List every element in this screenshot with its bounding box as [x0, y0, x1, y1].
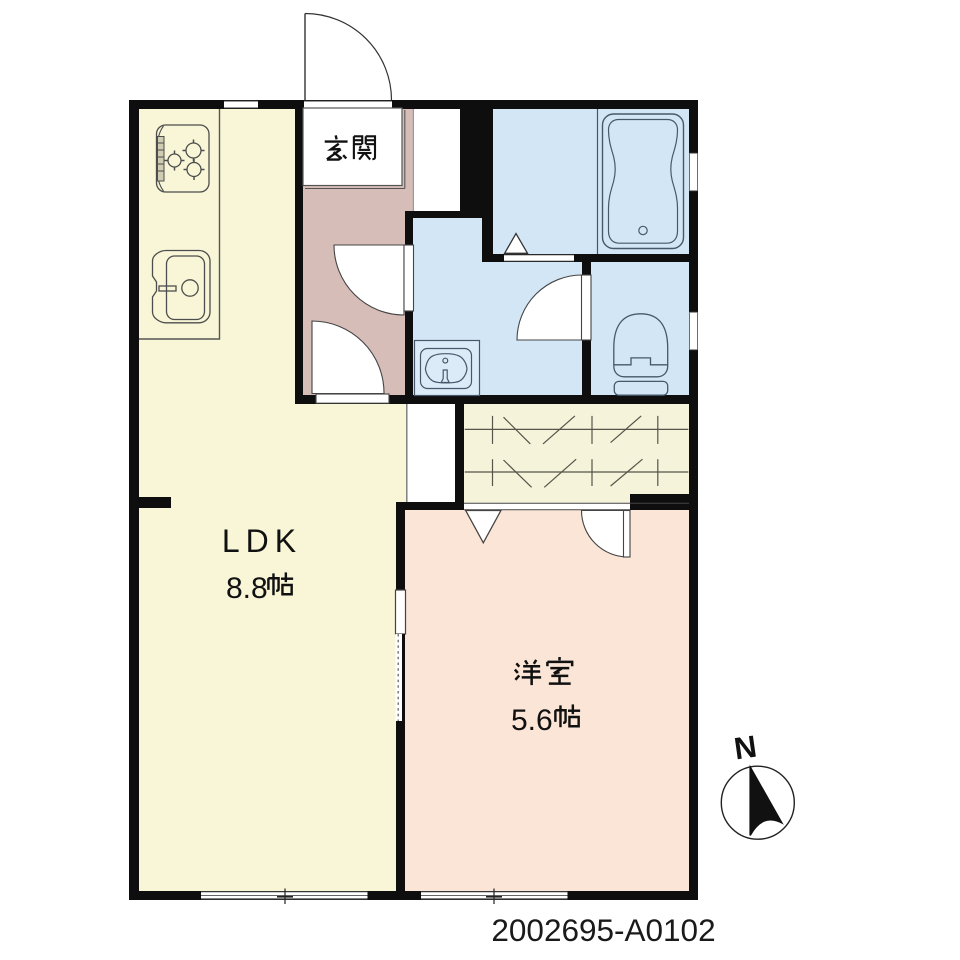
svg-text:LDK: LDK: [222, 523, 302, 559]
svg-text:2002695-A0102: 2002695-A0102: [491, 912, 715, 948]
svg-text:8.8: 8.8: [226, 572, 268, 605]
svg-text:5.6: 5.6: [511, 704, 553, 737]
